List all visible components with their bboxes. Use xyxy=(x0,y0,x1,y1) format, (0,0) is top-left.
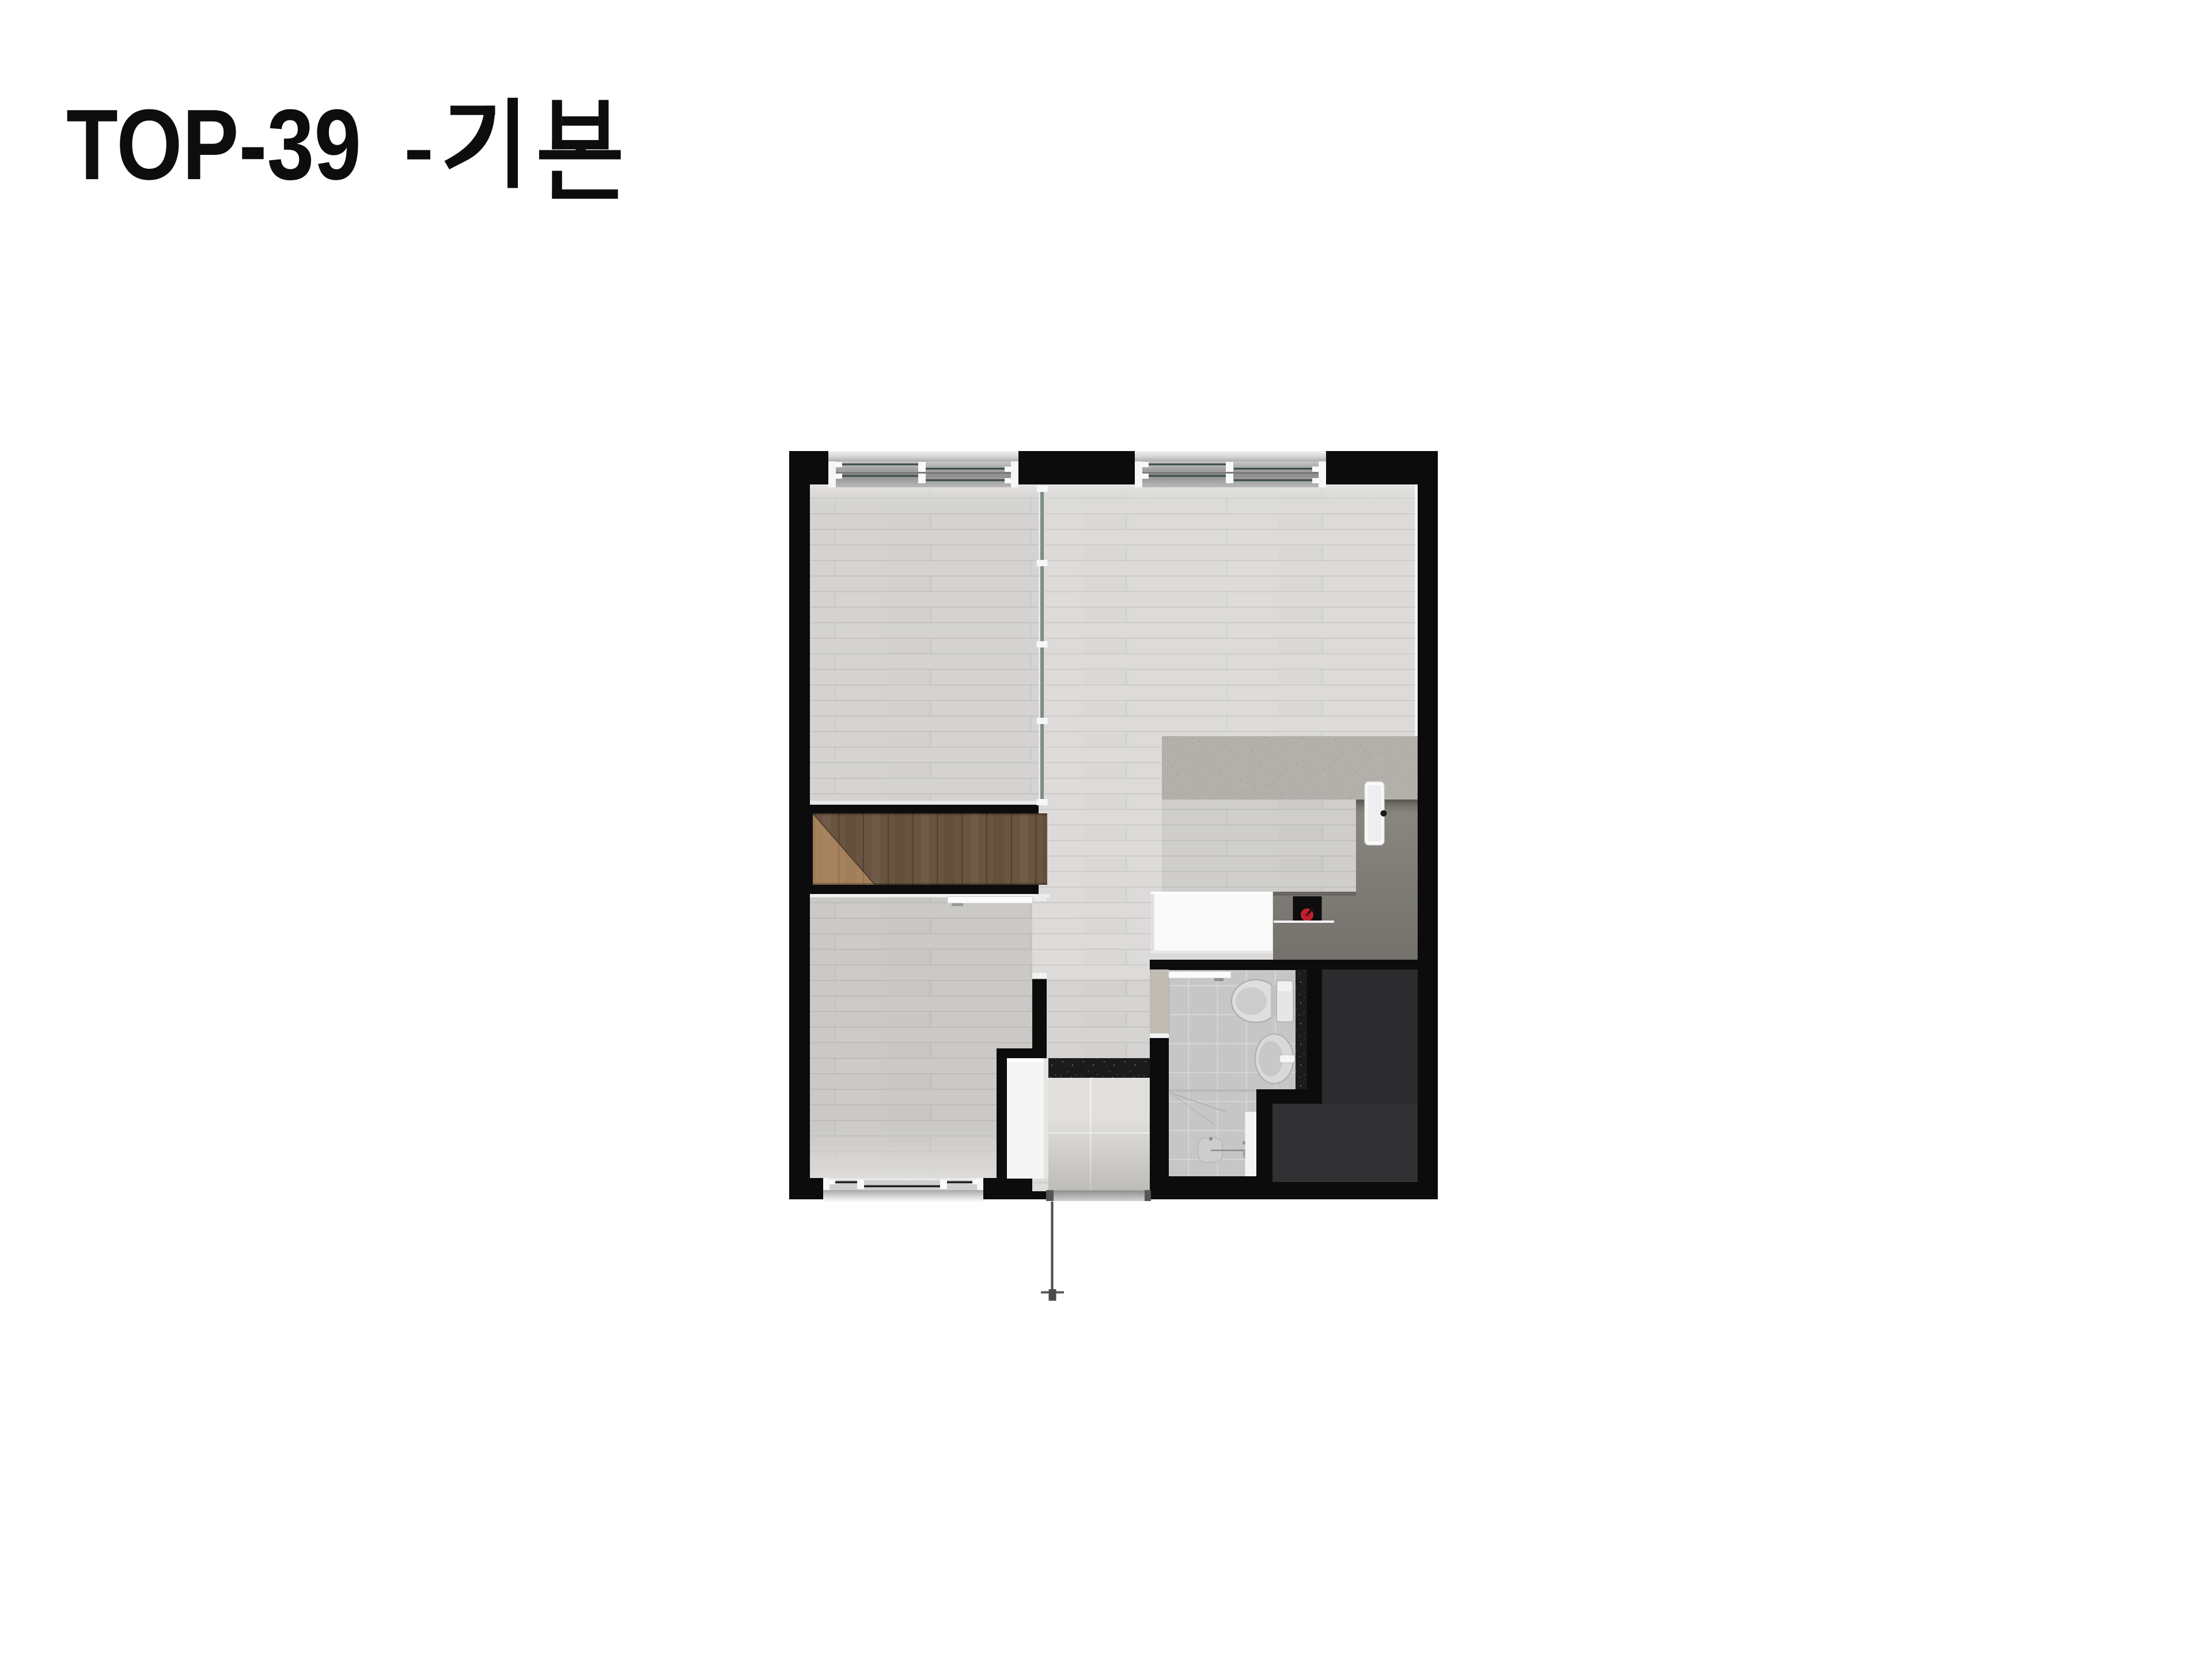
svg-text:TOP-39: TOP-39 xyxy=(66,89,361,200)
